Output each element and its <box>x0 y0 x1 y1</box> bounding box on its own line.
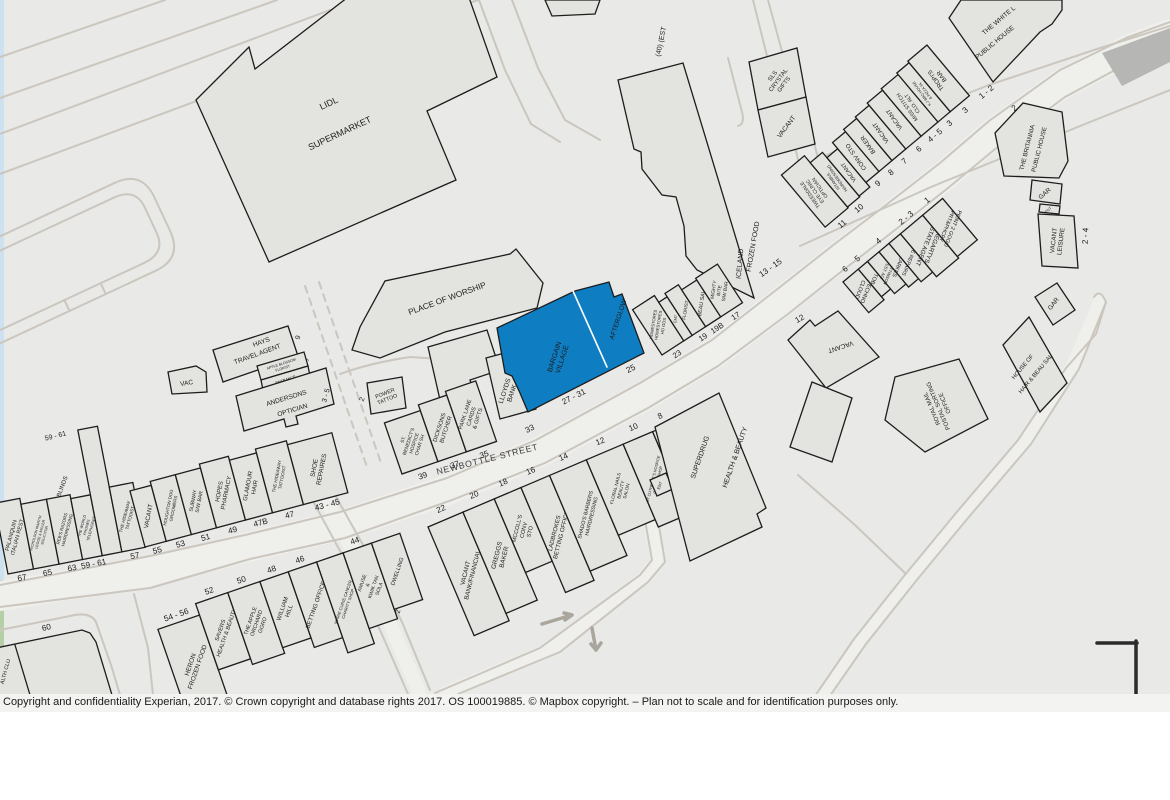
svg-text:2 - 4: 2 - 4 <box>1081 227 1091 244</box>
